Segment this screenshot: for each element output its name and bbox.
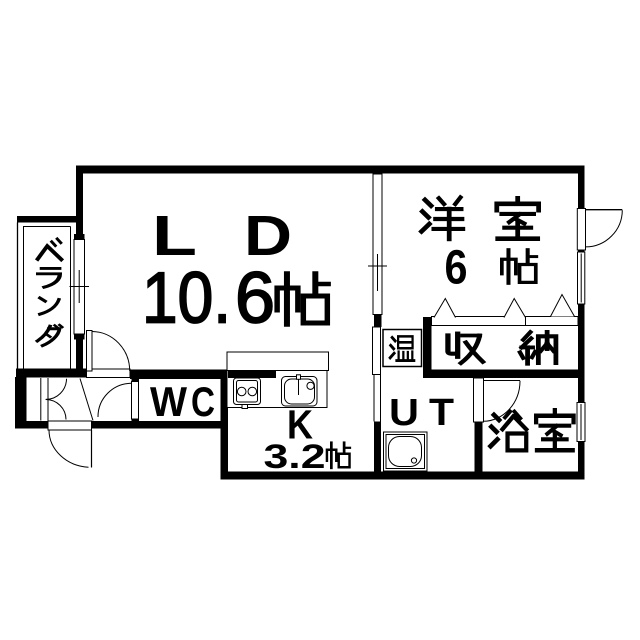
svg-text:U: U	[389, 392, 419, 434]
svg-text:6: 6	[235, 259, 275, 339]
svg-text:6: 6	[445, 242, 468, 295]
svg-text:W: W	[150, 378, 187, 425]
svg-text:T: T	[429, 392, 454, 434]
svg-text:10.: 10.	[142, 259, 231, 339]
svg-text:C: C	[191, 378, 215, 425]
svg-text:3.2: 3.2	[264, 438, 326, 476]
